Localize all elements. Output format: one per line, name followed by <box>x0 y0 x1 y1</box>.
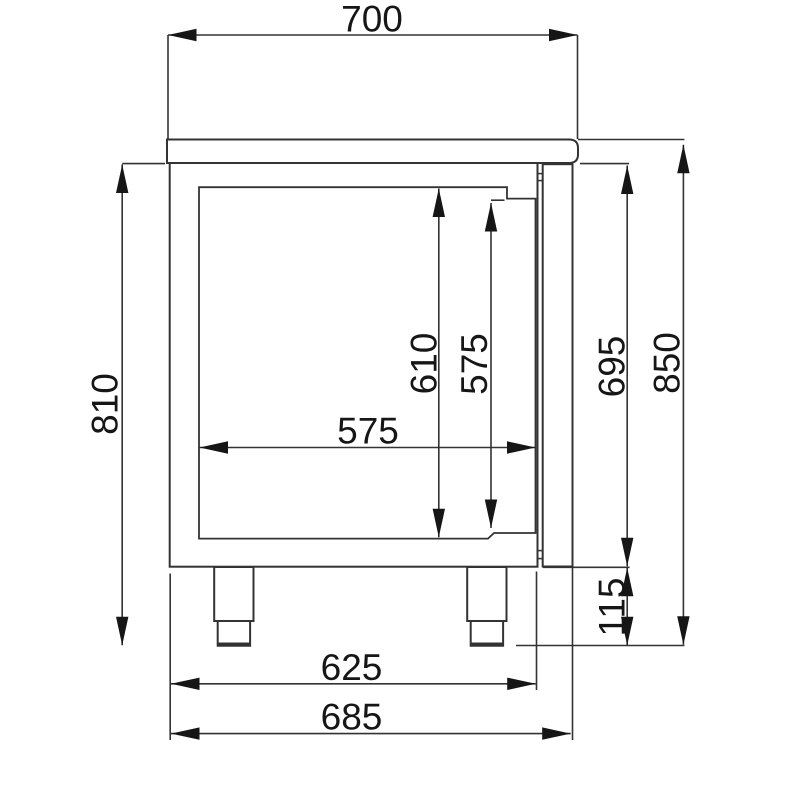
svg-text:575: 575 <box>337 411 399 452</box>
svg-text:695: 695 <box>592 336 633 398</box>
svg-text:850: 850 <box>647 332 688 394</box>
svg-text:700: 700 <box>341 0 403 40</box>
svg-text:685: 685 <box>321 697 383 738</box>
svg-text:625: 625 <box>321 647 383 688</box>
svg-text:810: 810 <box>85 373 126 435</box>
svg-text:610: 610 <box>404 333 445 395</box>
svg-text:575: 575 <box>454 333 495 395</box>
svg-text:115: 115 <box>592 578 633 637</box>
